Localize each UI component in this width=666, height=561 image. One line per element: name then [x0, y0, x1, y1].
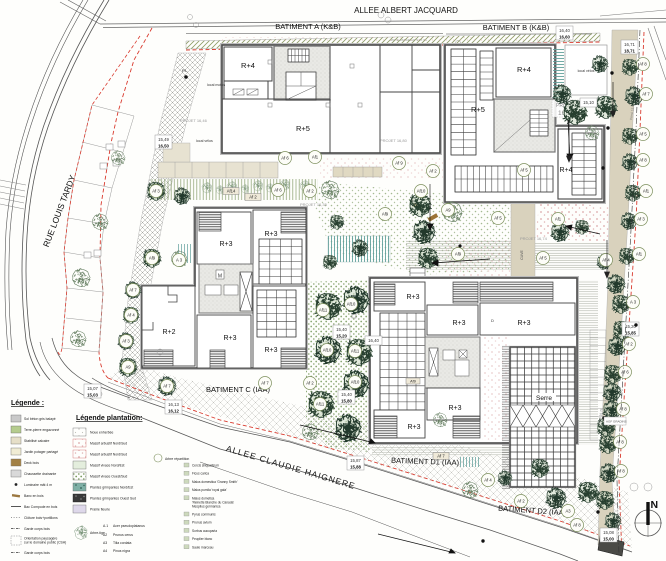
svg-text:Plantes grimpantes Ouest Sud: Plantes grimpantes Ouest Sud	[90, 497, 136, 501]
svg-text:Af 5: Af 5	[520, 168, 528, 173]
svg-text:Peuplier blanc: Peuplier blanc	[192, 537, 213, 541]
svg-text:R+3: R+3	[452, 320, 465, 327]
svg-text:R+3: R+3	[407, 424, 420, 431]
svg-text:BATIMENT A (K&B): BATIMENT A (K&B)	[275, 22, 341, 31]
svg-text:A 3: A 3	[176, 258, 183, 263]
svg-text:BATIMENT B (K&B): BATIMENT B (K&B)	[483, 23, 550, 32]
svg-text:Arbre répartition: Arbre répartition	[165, 457, 189, 461]
svg-text:A3: A3	[565, 509, 571, 514]
svg-text:Deck bois: Deck bois	[24, 461, 39, 465]
svg-text:16,13: 16,13	[168, 402, 179, 407]
svg-text:R+3: R+3	[264, 231, 277, 238]
svg-text:Af 6: Af 6	[274, 188, 282, 193]
svg-text:15,10: 15,10	[583, 100, 594, 105]
svg-text:Af10: Af10	[347, 302, 356, 307]
svg-text:Massif arbustif Nord/Sud: Massif arbustif Nord/Sud	[90, 442, 127, 446]
svg-text:Massif vivace Ouest/Sud: Massif vivace Ouest/Sud	[90, 475, 127, 479]
svg-text:Af 6: Af 6	[281, 156, 289, 161]
svg-text:Af 8: Af 8	[639, 158, 647, 163]
svg-text:Af11: Af11	[316, 402, 325, 407]
svg-text:R+3: R+3	[223, 335, 236, 342]
svg-text:Af1: Af1	[555, 217, 562, 222]
svg-text:Terre-pierre engazonné: Terre-pierre engazonné	[24, 428, 59, 432]
svg-text:Sol béton gris balayé: Sol béton gris balayé	[24, 417, 56, 421]
svg-text:Clôture bois+portillons: Clôture bois+portillons	[24, 516, 58, 520]
svg-text:R+3: R+3	[406, 294, 419, 301]
svg-text:R+3: R+3	[264, 347, 277, 354]
svg-text:Tilia cordata: Tilia cordata	[113, 541, 131, 545]
svg-text:Af 2: Af 2	[306, 189, 314, 194]
svg-text:Garde corps bois: Garde corps bois	[24, 527, 50, 531]
svg-text:Pyrus communis: Pyrus communis	[192, 513, 216, 517]
svg-text:N: N	[651, 499, 659, 511]
svg-text:16,50: 16,50	[158, 144, 169, 149]
svg-text:Af 2: Af 2	[517, 499, 525, 504]
svg-text:15,07: 15,07	[87, 386, 98, 391]
svg-text:15,08: 15,08	[603, 530, 614, 535]
svg-text:Af 7: Af 7	[129, 288, 137, 293]
svg-text:15,20: 15,20	[336, 334, 347, 339]
svg-text:Massif arbustif Nord/Sud: Massif arbustif Nord/Sud	[90, 453, 127, 457]
svg-text:PROJET 16,46: PROJET 16,46	[180, 118, 208, 123]
svg-text:Af 2: Af 2	[429, 169, 437, 174]
svg-text:Af9: Af9	[455, 252, 462, 257]
svg-text:Af 8: Af 8	[616, 440, 624, 445]
svg-text:Mespilus germanica: Mespilus germanica	[192, 504, 221, 508]
svg-text:15,00: 15,00	[603, 537, 614, 542]
svg-text:Af 6: Af 6	[621, 370, 629, 375]
svg-text:Af 2: Af 2	[625, 342, 633, 347]
svg-text:Af 7: Af 7	[261, 381, 269, 386]
svg-text:Af 9: Af 9	[395, 161, 403, 166]
svg-text:Af 7: Af 7	[163, 384, 171, 389]
svg-text:Af 3: Af 3	[122, 339, 130, 344]
svg-text:local motos: local motos	[207, 83, 225, 87]
svg-text:Saule marceau: Saule marceau	[192, 545, 214, 549]
svg-text:Malus domestica 'Granny Smith': Malus domestica 'Granny Smith'	[192, 480, 238, 484]
svg-text:Af 7: Af 7	[642, 92, 650, 97]
svg-text:Af 5: Af 5	[539, 256, 547, 261]
svg-text:Plantes grimpantes Nord/Est: Plantes grimpantes Nord/Est	[90, 486, 133, 490]
svg-text:Af1: Af1	[312, 155, 319, 160]
svg-text:Af 8: Af 8	[639, 62, 647, 67]
svg-text:Af14: Af14	[227, 189, 236, 194]
svg-text:Af11: Af11	[351, 349, 360, 354]
svg-text:Af11: Af11	[319, 308, 328, 313]
svg-text:R+4: R+4	[517, 65, 531, 74]
svg-text:Af10: Af10	[417, 189, 426, 194]
svg-text:Prunus avium: Prunus avium	[192, 521, 212, 525]
svg-text:Chaussette drainante: Chaussette drainante	[24, 472, 56, 476]
svg-text:Af 3: Af 3	[637, 217, 645, 222]
svg-text:Noue enherbée: Noue enherbée	[90, 431, 113, 435]
svg-text:Af9: Af9	[410, 380, 416, 384]
svg-text:Garde corps bois: Garde corps bois	[24, 551, 50, 555]
svg-text:18,71: 18,71	[624, 49, 635, 54]
svg-text:Af 5: Af 5	[494, 216, 502, 221]
svg-text:D: D	[491, 318, 494, 323]
svg-text:15,03: 15,03	[87, 393, 98, 398]
svg-text:local vélos: local vélos	[578, 69, 595, 73]
svg-text:Af 8: Af 8	[619, 407, 627, 412]
svg-text:Pinus nigra: Pinus nigra	[113, 549, 130, 553]
svg-text:R+3: R+3	[448, 405, 461, 412]
svg-text:15,49: 15,49	[158, 137, 169, 142]
svg-text:PROJET 16,74: PROJET 16,74	[520, 236, 548, 241]
svg-text:sur le domaine public (CSA): sur le domaine public (CSA)	[24, 541, 66, 545]
svg-text:M: M	[218, 274, 222, 280]
svg-text:Af 4: Af 4	[484, 478, 492, 483]
svg-text:Af 4: Af 4	[602, 258, 610, 263]
svg-text:Stabilisé calcaire: Stabilisé calcaire	[24, 439, 50, 443]
svg-text:Banc en bois: Banc en bois	[24, 494, 44, 498]
svg-text:16,71: 16,71	[624, 42, 635, 47]
svg-text:Af 5: Af 5	[639, 132, 647, 137]
svg-text:15,40: 15,40	[336, 327, 347, 332]
svg-text:Af 7: Af 7	[437, 454, 445, 459]
svg-text:A2: A2	[103, 533, 107, 537]
svg-text:Af9: Af9	[149, 256, 156, 261]
svg-text:A.1: A.1	[103, 524, 108, 528]
svg-text:Bac Compode en bois: Bac Compode en bois	[24, 505, 58, 509]
svg-text:R+2: R+2	[162, 329, 175, 336]
svg-text:16,40: 16,40	[368, 338, 379, 343]
svg-text:R+3: R+3	[219, 241, 232, 248]
svg-text:Prunus cerus: Prunus cerus	[113, 533, 133, 537]
svg-text:Cercis siliquastrum: Cercis siliquastrum	[192, 464, 219, 468]
svg-text:15,80: 15,80	[341, 399, 352, 404]
svg-text:A3: A3	[103, 541, 107, 545]
svg-text:PROJET 16,80: PROJET 16,80	[380, 138, 408, 143]
svg-text:Légende plantation:: Légende plantation:	[76, 415, 143, 422]
svg-text:Malus pumila 'royal gala': Malus pumila 'royal gala'	[192, 488, 227, 492]
svg-text:15,85: 15,85	[625, 331, 636, 336]
svg-text:A9: A9	[125, 365, 131, 370]
svg-text:Acer pseudoplatanus: Acer pseudoplatanus	[113, 524, 145, 528]
svg-text:16,40: 16,40	[559, 28, 570, 33]
svg-text:Af 4: Af 4	[127, 313, 135, 318]
svg-text:15,87: 15,87	[350, 458, 361, 463]
svg-text:Luminaire mât 4 m: Luminaire mât 4 m	[24, 483, 52, 487]
svg-text:R+4: R+4	[241, 61, 255, 70]
svg-text:R+5: R+5	[471, 105, 485, 114]
svg-text:Serre: Serre	[536, 395, 552, 402]
svg-text:16,12: 16,12	[168, 409, 179, 414]
svg-text:A 3: A 3	[630, 300, 637, 305]
svg-text:Af 8: Af 8	[573, 523, 581, 528]
svg-text:local vélos: local vélos	[196, 139, 213, 143]
svg-text:Massif vivace Nord/Est: Massif vivace Nord/Est	[90, 464, 125, 468]
svg-text:Af1: Af1	[636, 252, 643, 257]
svg-text:Ficus carica: Ficus carica	[192, 472, 209, 476]
svg-text:R+4: R+4	[559, 167, 572, 174]
svg-text:Jardin potager partagé: Jardin potager partagé	[24, 450, 58, 454]
svg-text:AGF GRADINS: AGF GRADINS	[606, 420, 627, 424]
svg-text:R+3: R+3	[517, 320, 530, 327]
svg-text:Af1: Af1	[643, 189, 650, 194]
svg-text:A4: A4	[103, 549, 107, 553]
svg-text:Af 2: Af 2	[306, 381, 314, 386]
svg-text:Légende :: Légende :	[11, 400, 44, 407]
svg-text:P.L: P.L	[182, 68, 188, 73]
svg-text:Af10: Af10	[351, 380, 360, 385]
svg-text:Af10: Af10	[323, 348, 332, 353]
svg-text:15,88: 15,88	[350, 465, 361, 470]
svg-text:Af 8: Af 8	[617, 469, 625, 474]
svg-text:R+5: R+5	[296, 124, 310, 133]
svg-text:A9: A9	[445, 208, 451, 213]
svg-text:Prairie fleurie: Prairie fleurie	[90, 508, 110, 512]
svg-text:Af9: Af9	[382, 212, 389, 217]
svg-text:Sorbus aucuparia: Sorbus aucuparia	[192, 529, 217, 533]
svg-text:CUVE: CUVE	[520, 249, 524, 259]
svg-text:15,40: 15,40	[341, 392, 352, 397]
svg-text:Af 2: Af 2	[249, 195, 257, 200]
svg-text:PROJET 16,35: PROJET 16,35	[300, 202, 328, 207]
svg-text:Af 3: Af 3	[152, 189, 160, 194]
svg-text:16,60: 16,60	[559, 35, 570, 40]
svg-text:ALLEE ALBERT JACQUARD: ALLEE ALBERT JACQUARD	[354, 6, 458, 15]
